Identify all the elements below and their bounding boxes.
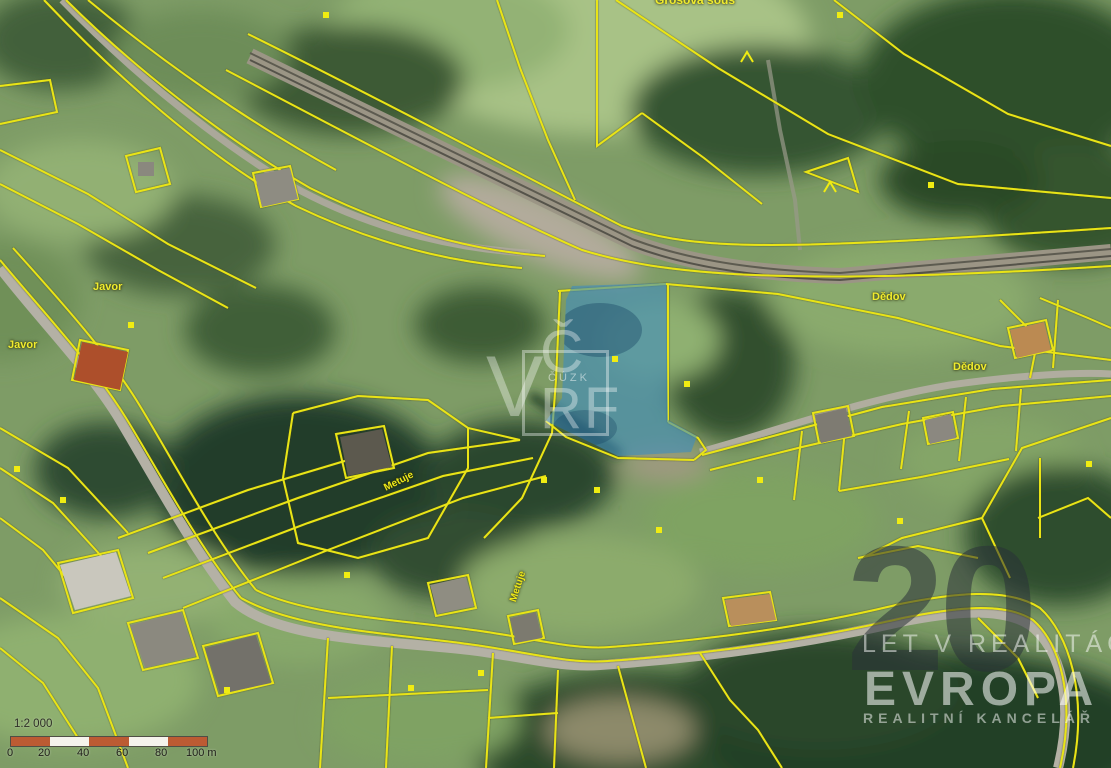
scale-tick: 20 [38, 747, 50, 759]
scale-segment [89, 737, 128, 746]
scale-tick-labels: 0 20 40 60 80 100 m [0, 747, 240, 761]
scale-segment [50, 737, 89, 746]
scale-tick: 80 [155, 747, 167, 759]
cadastral-map-view[interactable]: Grošová souš Javor Javor Dědov Dědov Met… [0, 0, 1111, 768]
scale-segment [129, 737, 168, 746]
scale-tick: 100 m [186, 747, 217, 759]
scale-segment [168, 737, 207, 746]
watermark-frame [522, 350, 609, 436]
scale-tick: 0 [7, 747, 13, 759]
scale-segment [11, 737, 50, 746]
scale-tick: 40 [77, 747, 89, 759]
scale-tick: 60 [116, 747, 128, 759]
scale-bar [10, 736, 208, 747]
scale-ratio-label: 1:2 000 [14, 718, 52, 730]
